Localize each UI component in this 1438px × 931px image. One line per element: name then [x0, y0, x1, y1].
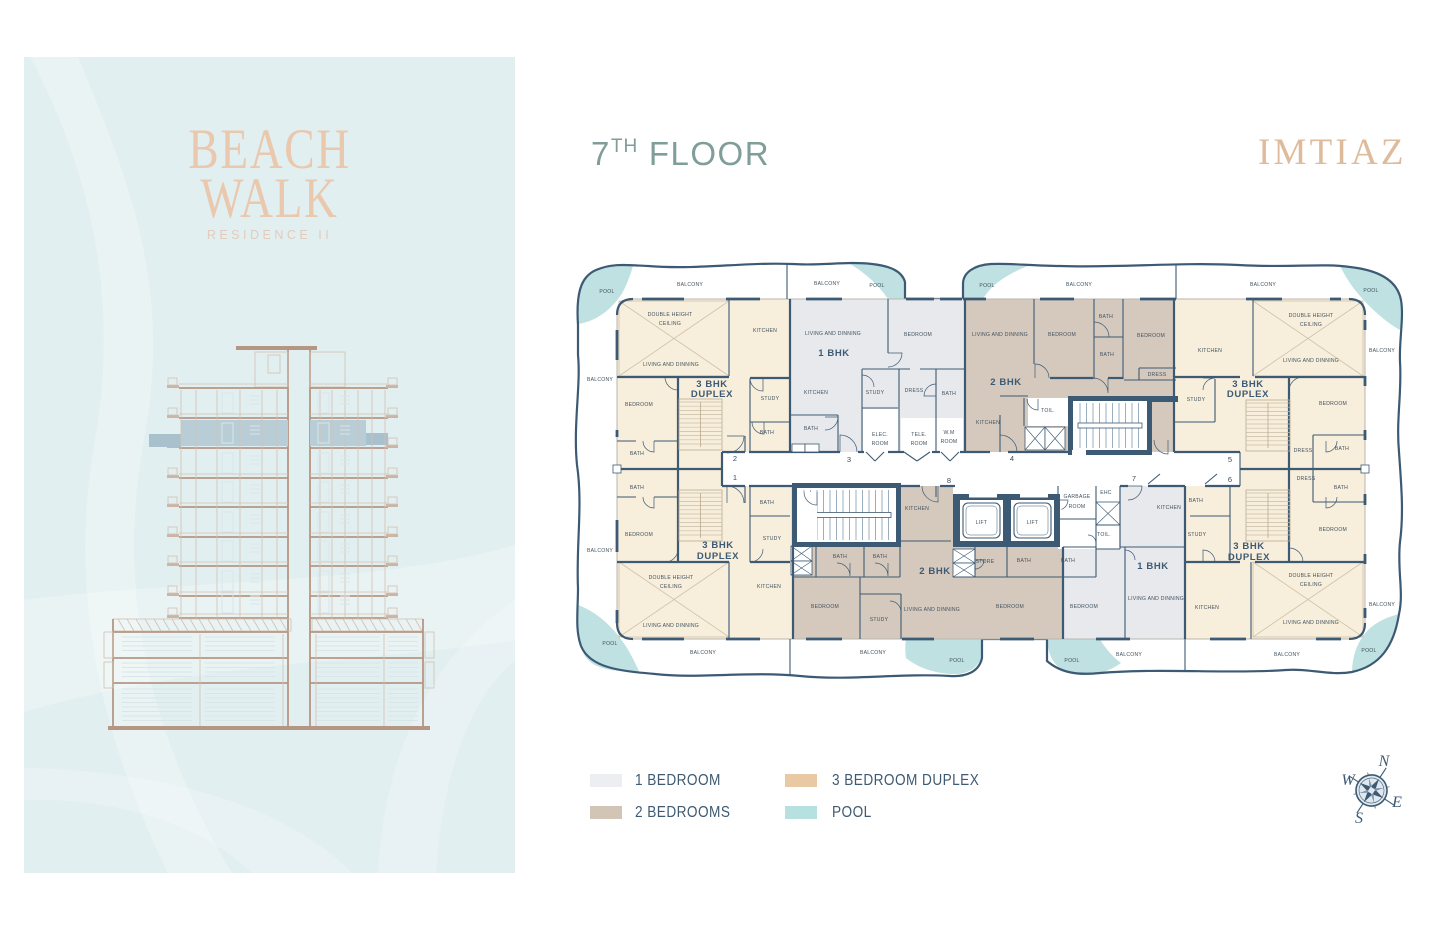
svg-text:BATH: BATH: [1334, 485, 1348, 491]
svg-text:BALCONY: BALCONY: [860, 650, 886, 656]
svg-text:ROOM: ROOM: [872, 441, 889, 447]
svg-text:STUDY: STUDY: [763, 536, 782, 542]
svg-text:BEDROOM: BEDROOM: [996, 604, 1024, 610]
svg-text:W: W: [1341, 772, 1356, 789]
svg-text:E: E: [1391, 794, 1402, 811]
svg-text:BEDROOM: BEDROOM: [1137, 333, 1165, 339]
svg-text:STUDY: STUDY: [866, 390, 885, 396]
svg-text:DRESS: DRESS: [905, 388, 924, 394]
svg-text:POOL: POOL: [1361, 648, 1376, 654]
svg-text:DUPLEX: DUPLEX: [697, 551, 739, 562]
svg-text:6: 6: [1228, 475, 1232, 484]
svg-text:3: 3: [847, 455, 851, 464]
svg-text:BEDROOM: BEDROOM: [811, 604, 839, 610]
svg-text:BATH: BATH: [1100, 352, 1114, 358]
svg-text:2: 2: [733, 454, 737, 463]
svg-text:LIVING AND DINNING: LIVING AND DINNING: [1283, 358, 1339, 364]
svg-text:BATH: BATH: [760, 430, 774, 436]
svg-text:BATH: BATH: [1189, 498, 1203, 504]
svg-text:BEDROOM: BEDROOM: [625, 532, 653, 538]
svg-text:BATH: BATH: [630, 451, 644, 457]
svg-text:ELEC.: ELEC.: [872, 432, 888, 438]
svg-text:KITCHEN: KITCHEN: [905, 506, 929, 512]
svg-text:TOIL.: TOIL.: [1097, 532, 1111, 538]
svg-text:BALCONY: BALCONY: [1369, 602, 1395, 608]
svg-text:BEDROOM: BEDROOM: [904, 332, 932, 338]
svg-text:4: 4: [1010, 454, 1014, 463]
svg-text:DRESS: DRESS: [1294, 448, 1313, 454]
svg-text:CEILING: CEILING: [1300, 322, 1322, 328]
svg-text:STUDY: STUDY: [870, 617, 889, 623]
svg-text:BALCONY: BALCONY: [814, 281, 840, 287]
svg-text:W.M: W.M: [944, 430, 955, 436]
svg-text:8: 8: [947, 476, 951, 485]
svg-text:2 BHK: 2 BHK: [990, 377, 1022, 388]
svg-text:CEILING: CEILING: [659, 321, 681, 327]
svg-text:LIVING AND DINNING: LIVING AND DINNING: [972, 332, 1028, 338]
svg-text:STUDY: STUDY: [1187, 397, 1206, 403]
svg-text:BATH: BATH: [804, 426, 818, 432]
svg-text:LIVING AND DINNING: LIVING AND DINNING: [1128, 596, 1184, 602]
svg-text:3 BHK: 3 BHK: [1233, 541, 1265, 552]
svg-text:KITCHEN: KITCHEN: [1195, 605, 1219, 611]
svg-text:LIVING AND DINNING: LIVING AND DINNING: [643, 623, 699, 629]
svg-text:BALCONY: BALCONY: [1369, 348, 1395, 354]
svg-text:KITCHEN: KITCHEN: [1157, 505, 1181, 511]
svg-text:LIVING AND DINNING: LIVING AND DINNING: [643, 362, 699, 368]
svg-text:S: S: [1355, 810, 1363, 827]
svg-text:BALCONY: BALCONY: [1116, 652, 1142, 658]
svg-text:1 BHK: 1 BHK: [818, 348, 850, 359]
svg-text:POOL: POOL: [599, 289, 614, 295]
svg-text:N: N: [1378, 753, 1391, 770]
svg-text:DOUBLE HEIGHT: DOUBLE HEIGHT: [1289, 573, 1334, 579]
svg-text:DRESS: DRESS: [1148, 372, 1167, 378]
svg-text:BALCONY: BALCONY: [1250, 282, 1276, 288]
svg-text:BALCONY: BALCONY: [1066, 282, 1092, 288]
svg-text:DRESS: DRESS: [1297, 476, 1316, 482]
svg-text:7: 7: [1132, 474, 1136, 483]
svg-text:BATH: BATH: [1099, 314, 1113, 320]
svg-text:1 BHK: 1 BHK: [1137, 561, 1169, 572]
svg-text:CEILING: CEILING: [1300, 582, 1322, 588]
svg-text:BEDROOM: BEDROOM: [1319, 527, 1347, 533]
svg-text:ROOM: ROOM: [1069, 504, 1086, 510]
svg-text:5: 5: [1228, 455, 1232, 464]
svg-text:CEILING: CEILING: [660, 584, 682, 590]
svg-text:BEDROOM: BEDROOM: [1070, 604, 1098, 610]
svg-text:BEDROOM: BEDROOM: [1048, 332, 1076, 338]
svg-text:BALCONY: BALCONY: [677, 282, 703, 288]
svg-text:GARBAGE: GARBAGE: [1064, 494, 1091, 500]
svg-text:POOL: POOL: [602, 641, 617, 647]
svg-text:BEDROOM: BEDROOM: [1319, 401, 1347, 407]
svg-text:POOL: POOL: [949, 658, 964, 664]
svg-text:BATH: BATH: [1017, 558, 1031, 564]
svg-text:2 BHK: 2 BHK: [919, 566, 951, 577]
svg-text:EHC: EHC: [1100, 490, 1112, 496]
svg-text:POOL: POOL: [1363, 288, 1378, 294]
svg-text:STUDY: STUDY: [761, 396, 780, 402]
svg-text:LIVING AND DINNING: LIVING AND DINNING: [805, 331, 861, 337]
svg-text:BATH: BATH: [1335, 446, 1349, 452]
svg-text:DUPLEX: DUPLEX: [1227, 389, 1269, 400]
svg-text:BATH: BATH: [833, 554, 847, 560]
svg-text:BATH: BATH: [1061, 558, 1075, 564]
svg-text:1: 1: [733, 473, 737, 482]
svg-text:TOIL.: TOIL.: [1041, 408, 1055, 414]
svg-text:DUPLEX: DUPLEX: [1228, 552, 1270, 563]
svg-text:BEDROOM: BEDROOM: [625, 402, 653, 408]
svg-text:KITCHEN: KITCHEN: [757, 584, 781, 590]
svg-text:LIVING AND DINNING: LIVING AND DINNING: [904, 607, 960, 613]
svg-text:ROOM: ROOM: [941, 439, 958, 445]
svg-text:BATH: BATH: [873, 554, 887, 560]
svg-text:LIFT: LIFT: [976, 520, 987, 526]
svg-text:BATH: BATH: [942, 391, 956, 397]
svg-text:DUPLEX: DUPLEX: [691, 389, 733, 400]
svg-text:BALCONY: BALCONY: [587, 548, 613, 554]
svg-text:POOL: POOL: [979, 283, 994, 289]
svg-text:3 BHK: 3 BHK: [702, 540, 734, 551]
svg-text:LIFT: LIFT: [1027, 520, 1038, 526]
svg-text:BALCONY: BALCONY: [587, 377, 613, 383]
svg-text:BATH: BATH: [760, 500, 774, 506]
svg-text:POOL: POOL: [1064, 658, 1079, 664]
svg-text:DOUBLE HEIGHT: DOUBLE HEIGHT: [649, 575, 694, 581]
svg-text:TELE.: TELE.: [911, 432, 926, 438]
svg-text:KITCHEN: KITCHEN: [804, 390, 828, 396]
svg-text:BALCONY: BALCONY: [690, 650, 716, 656]
svg-text:LIVING AND DINNING: LIVING AND DINNING: [1283, 620, 1339, 626]
svg-text:BATH: BATH: [630, 485, 644, 491]
svg-text:DOUBLE HEIGHT: DOUBLE HEIGHT: [1289, 313, 1334, 319]
svg-text:DOUBLE HEIGHT: DOUBLE HEIGHT: [648, 312, 693, 318]
svg-text:KITCHEN: KITCHEN: [1198, 348, 1222, 354]
svg-text:KITCHEN: KITCHEN: [753, 328, 777, 334]
svg-text:STUDY: STUDY: [1188, 532, 1207, 538]
svg-text:POOL: POOL: [869, 283, 884, 289]
svg-text:BALCONY: BALCONY: [1274, 652, 1300, 658]
svg-text:KITCHEN: KITCHEN: [976, 420, 1000, 426]
svg-text:ROOM: ROOM: [911, 441, 928, 447]
svg-text:STORE: STORE: [976, 559, 995, 565]
